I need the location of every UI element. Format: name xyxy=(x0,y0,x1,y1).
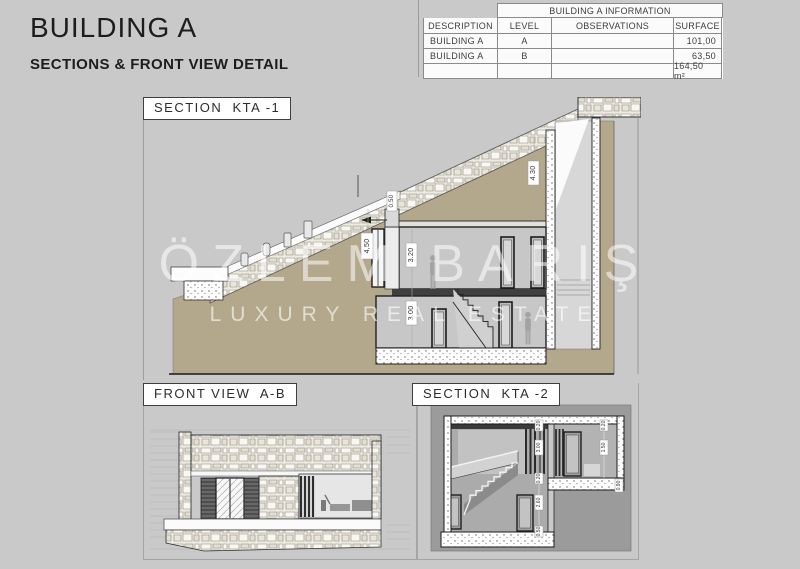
stone-cap xyxy=(578,97,641,117)
col-description: DESCRIPTION xyxy=(424,18,498,34)
drawing-sheet: BUILDING A SECTIONS & FRONT VIEW DETAIL … xyxy=(0,0,800,569)
table-cell xyxy=(424,64,498,79)
section-kta1-label: SECTION KTA -1 xyxy=(143,97,291,120)
dim-label: 0.20 xyxy=(536,473,542,483)
terrace-opening xyxy=(299,474,381,519)
table-cell-total: 164,50 m² xyxy=(674,64,722,79)
table-cell xyxy=(552,64,674,79)
info-table-title: BUILDING A INFORMATION xyxy=(497,3,723,18)
info-table: BUILDING A INFORMATION DESCRIPTION LEVEL… xyxy=(423,3,723,79)
dim-label: 2.60 xyxy=(536,497,542,507)
col-level: LEVEL xyxy=(498,18,552,34)
front-view-drawing xyxy=(144,383,414,557)
roof-slab xyxy=(394,221,546,227)
right-quoin xyxy=(372,441,381,519)
shutter-right xyxy=(244,478,259,519)
table-cell: A xyxy=(498,34,552,49)
dim-right-wall: 4.30 xyxy=(530,166,537,181)
page-title: BUILDING A xyxy=(30,12,197,44)
floor-slab xyxy=(392,289,546,296)
table-cell: B xyxy=(498,49,552,64)
front-view-panel xyxy=(143,383,417,560)
base-stone-band xyxy=(166,530,381,551)
table-cell: 101,00 xyxy=(674,34,722,49)
terrace-slab xyxy=(171,267,228,281)
section-kta2-drawing: 0.20 3.00 0.20 2.60 0.50 0.20 1.50 0.90 xyxy=(418,383,636,557)
section-kta2-panel: 0.20 3.00 0.20 2.60 0.50 0.20 1.50 0.90 xyxy=(417,383,639,560)
col-surface: SURFACE xyxy=(674,18,722,34)
table-cell: BUILDING A xyxy=(424,49,498,64)
dim-label: 0.20 xyxy=(536,420,542,430)
right-wing-floor-patch xyxy=(584,464,600,476)
terrace-footing xyxy=(184,281,223,300)
shutter-left xyxy=(201,478,216,519)
dim-lower-room: 3.00 xyxy=(408,306,415,321)
section-kta1-panel: 4,50 3.20 3.00 4.30 0.50 xyxy=(143,97,641,380)
dim-label: 3.00 xyxy=(536,442,542,452)
entry-step xyxy=(385,209,399,227)
table-cell xyxy=(552,34,674,49)
sill-band xyxy=(164,519,381,530)
upper-stone-band xyxy=(191,435,381,473)
dim-upper-room: 3.20 xyxy=(408,248,415,263)
page-subtitle: SECTIONS & FRONT VIEW DETAIL xyxy=(30,56,288,73)
upper-room xyxy=(399,227,546,289)
table-cell: BUILDING A xyxy=(424,34,498,49)
dim-label: 1.50 xyxy=(601,442,607,452)
front-view-label: FRONT VIEW A-B xyxy=(143,383,297,406)
shaft-right-wall xyxy=(592,118,600,349)
info-table-spacer xyxy=(423,3,497,18)
section-kta1-drawing: 4,50 3.20 3.00 4.30 0.50 xyxy=(144,97,641,380)
dim-entry-step: 0.50 xyxy=(389,194,395,207)
header-divider xyxy=(418,0,419,77)
dim-porch: 4,50 xyxy=(364,239,371,254)
lintel xyxy=(451,424,548,429)
dim-label: 0.50 xyxy=(536,526,542,536)
info-table-grid: DESCRIPTION LEVEL OBSERVATIONS SURFACE B… xyxy=(423,18,723,79)
foundation xyxy=(376,348,546,364)
dim-label: 0.20 xyxy=(601,420,607,430)
porch xyxy=(385,227,399,289)
stone-pier xyxy=(259,476,299,519)
info-table-title-row: BUILDING A INFORMATION xyxy=(423,3,723,18)
left-quoin xyxy=(179,432,191,524)
table-cell xyxy=(498,64,552,79)
section-kta2-label: SECTION KTA -2 xyxy=(412,383,560,406)
table-cell xyxy=(552,49,674,64)
building-right-wall xyxy=(546,130,555,349)
col-observations: OBSERVATIONS xyxy=(552,18,674,34)
dim-label: 0.90 xyxy=(616,480,622,490)
